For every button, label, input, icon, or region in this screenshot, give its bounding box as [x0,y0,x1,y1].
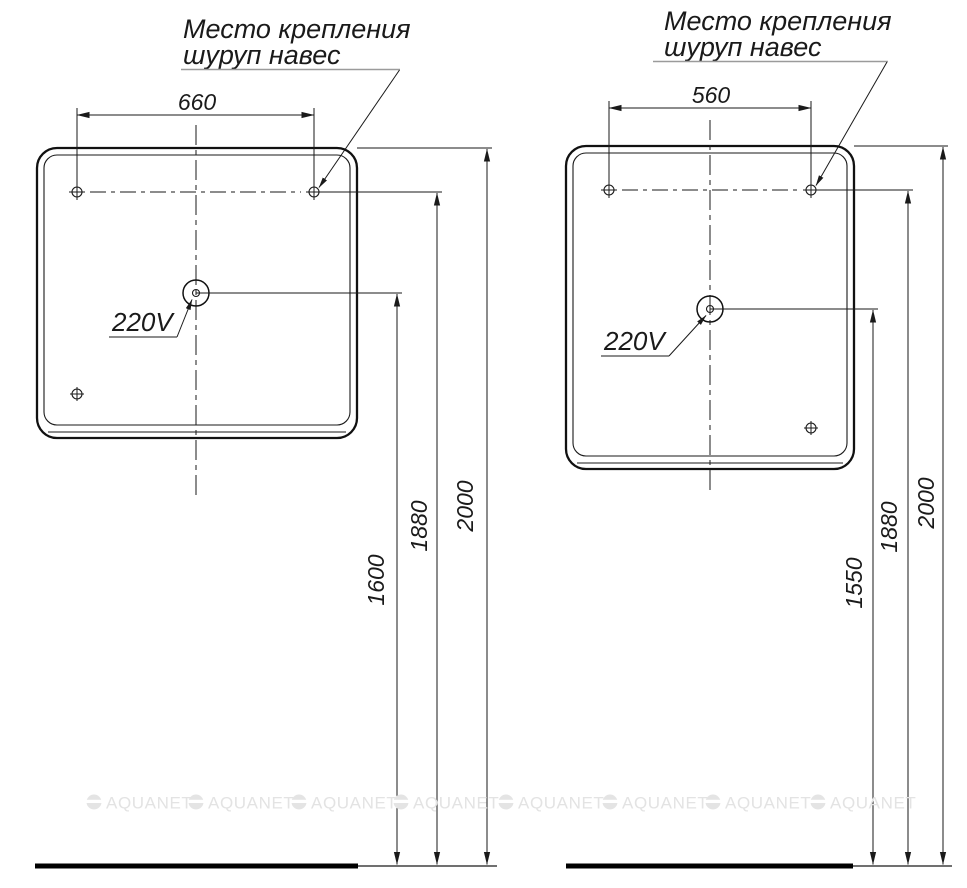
socket-voltage-label: 220V [111,307,175,337]
socket-height-value: 1600 [363,554,389,605]
brand-watermark: AQUANET [291,794,398,813]
top-height-value: 2000 [913,477,939,529]
brand-watermark: AQUANET [602,794,709,813]
position-cross-icon [70,387,84,401]
brand-watermark: AQUANET [393,794,500,813]
watermark-text: AQUANET [311,794,397,813]
watermark-text: AQUANET [518,794,604,813]
mounting-hole-icon [69,184,85,200]
watermark-text: AQUANET [106,794,192,813]
watermark-text: AQUANET [830,794,916,813]
watermark-text: AQUANET [622,794,708,813]
mount-note-line2: шуруп навес [183,40,341,70]
socket-leader-line [177,300,192,338]
note-leader-line [319,70,400,188]
watermark-text: AQUANET [725,794,811,813]
watermark-row: AQUANET AQUANET AQUANET AQUANET AQUANET … [86,794,917,813]
mount-note-line2: шуруп навес [664,32,822,62]
hole-height-value: 1880 [876,501,902,552]
hole-spacing-value: 560 [692,82,731,108]
brand-watermark: AQUANET [810,794,917,813]
technical-drawing-sheet: Место крепления шуруп навес 660 [0,0,967,888]
socket-leader-line [669,316,706,357]
position-cross-icon [804,421,818,435]
brand-watermark: AQUANET [86,794,193,813]
brand-watermark: AQUANET [705,794,812,813]
note-leader-line [816,62,887,186]
hole-spacing-value: 660 [178,89,217,115]
socket-voltage-label: 220V [603,326,667,356]
watermark-text: AQUANET [208,794,294,813]
top-height-value: 2000 [452,480,478,532]
watermark-text: AQUANET [413,794,499,813]
brand-watermark: AQUANET [188,794,295,813]
mounting-hole-icon [601,182,617,198]
socket-height-value: 1550 [841,557,867,608]
left-mirror-diagram: Место крепления шуруп навес 660 [35,14,497,866]
right-mirror-diagram: Место крепления шуруп навес 560 [566,6,952,866]
hole-height-value: 1880 [406,500,432,551]
mirror-installation-diagram: Место крепления шуруп навес 660 [0,0,967,888]
brand-watermark: AQUANET [498,794,605,813]
